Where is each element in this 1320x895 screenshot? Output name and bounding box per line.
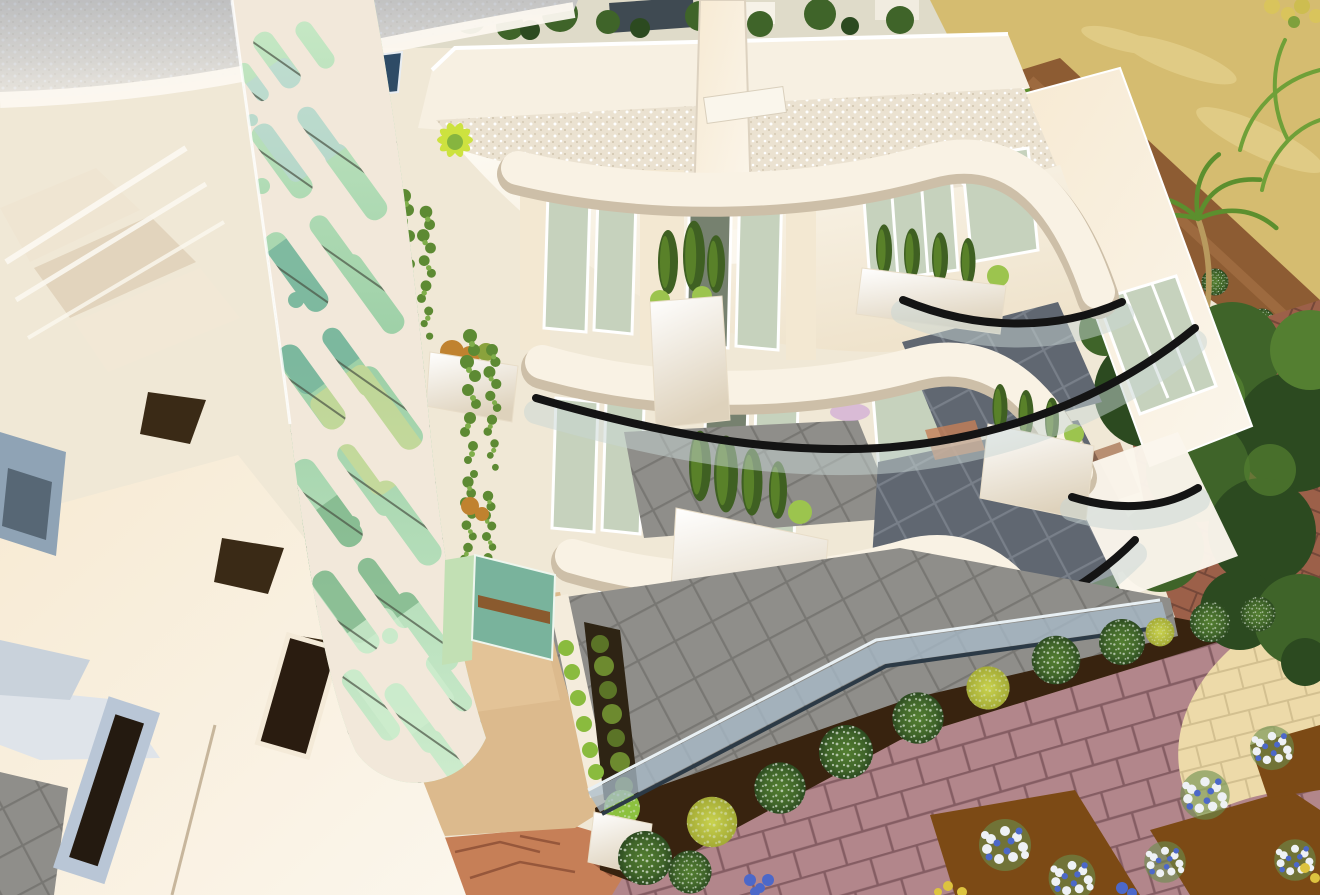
stepped-panels xyxy=(0,168,240,372)
canopy-side-glass xyxy=(442,555,475,665)
render-canvas xyxy=(0,0,1320,895)
planter-box xyxy=(650,296,730,428)
architectural-render xyxy=(0,0,1320,895)
